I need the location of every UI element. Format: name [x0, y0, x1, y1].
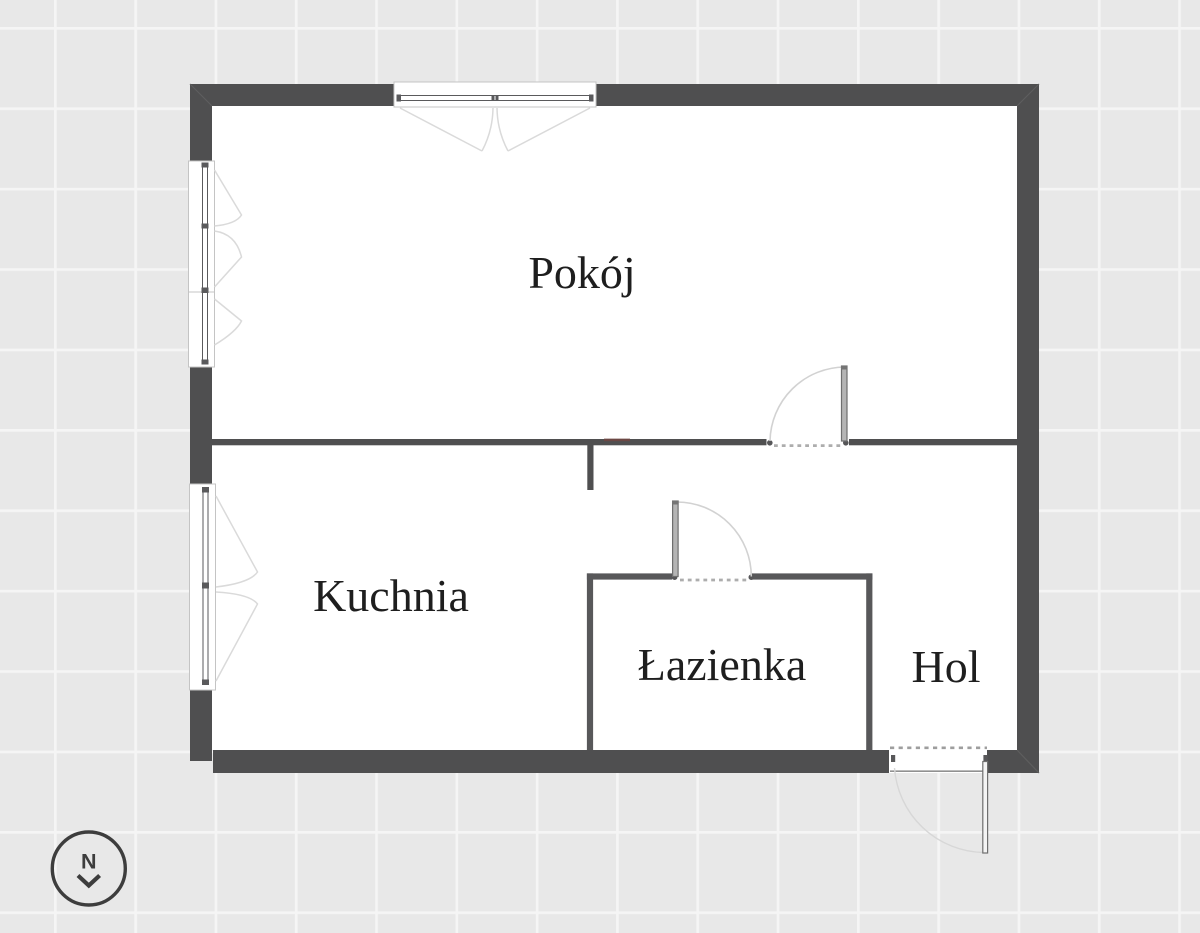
svg-text:Kuchnia: Kuchnia [313, 570, 469, 621]
svg-text:Łazienka: Łazienka [638, 639, 807, 690]
svg-text:N: N [81, 850, 97, 874]
svg-text:Pokój: Pokój [528, 247, 635, 298]
svg-text:Hol: Hol [912, 641, 981, 692]
